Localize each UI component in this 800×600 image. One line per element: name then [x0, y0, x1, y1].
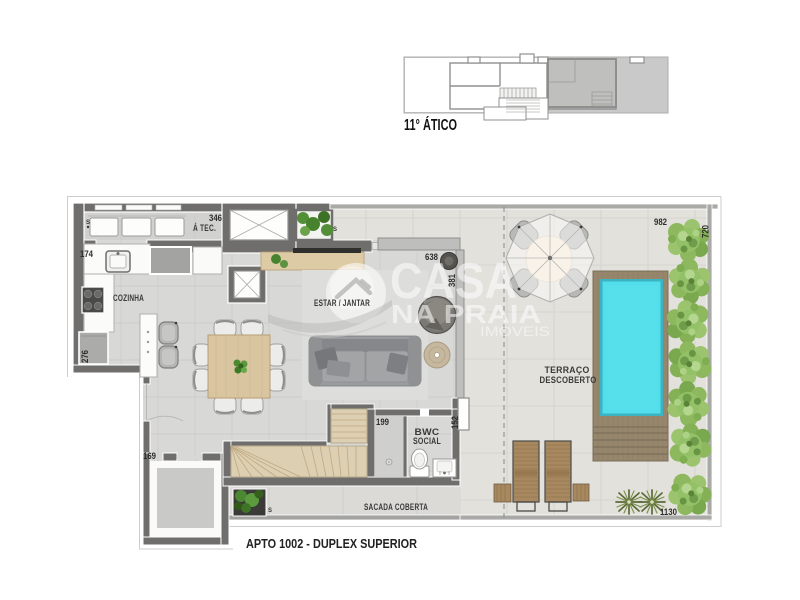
- svg-text:346: 346: [209, 213, 222, 223]
- svg-text:ESTAR / JANTAR: ESTAR / JANTAR: [314, 298, 370, 309]
- svg-text:SACADA COBERTA: SACADA COBERTA: [364, 502, 428, 513]
- svg-text:638: 638: [425, 252, 438, 262]
- svg-text:APTO 1002 - DUPLEX SUPERIOR: APTO 1002 - DUPLEX SUPERIOR: [246, 536, 418, 551]
- svg-text:174: 174: [80, 249, 93, 259]
- svg-text:SOCIAL: SOCIAL: [413, 436, 441, 447]
- svg-text:152: 152: [450, 416, 460, 429]
- svg-text:982: 982: [654, 217, 667, 227]
- svg-text:IMÓVEIS: IMÓVEIS: [480, 323, 550, 339]
- svg-text:Á TEC.: Á TEC.: [193, 223, 216, 234]
- svg-text:381: 381: [447, 274, 457, 287]
- svg-text:1130: 1130: [660, 507, 677, 517]
- svg-text:720: 720: [701, 225, 711, 238]
- svg-text:S: S: [268, 508, 272, 514]
- svg-text:COZINHA: COZINHA: [113, 293, 144, 304]
- svg-text:S: S: [333, 227, 337, 233]
- svg-text:276: 276: [80, 350, 90, 363]
- svg-text:169: 169: [143, 451, 156, 461]
- svg-text:11° ÁTICO: 11° ÁTICO: [404, 117, 457, 134]
- svg-text:199: 199: [376, 417, 389, 427]
- svg-text:DESCOBERTO: DESCOBERTO: [540, 375, 597, 386]
- svg-text:S: S: [86, 220, 90, 226]
